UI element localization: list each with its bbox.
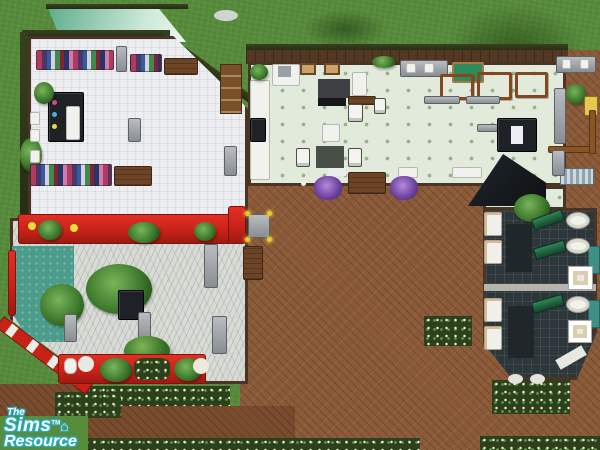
diner-chair-2[interactable]	[374, 98, 386, 114]
counter-plant-3[interactable]	[194, 222, 216, 241]
bathroom-sink-1[interactable]	[484, 212, 502, 236]
wall-shelf-units[interactable]	[220, 64, 242, 114]
white-flower-ball-2[interactable]	[193, 358, 209, 374]
garden-light-2[interactable]	[267, 211, 272, 216]
dark-rug	[318, 79, 350, 98]
window-left-1	[30, 112, 40, 125]
sink-basin-b[interactable]	[424, 63, 434, 73]
hedge-behind-lawn	[46, 4, 188, 9]
painting-1[interactable]	[300, 63, 316, 75]
outside-flowers-2	[530, 374, 545, 384]
counter-plant-2[interactable]	[128, 222, 160, 243]
deck-railing-v	[589, 110, 596, 154]
red-counter-side[interactable]	[228, 206, 246, 244]
display-stand-corridor[interactable]	[224, 146, 237, 176]
sink-basin-a[interactable]	[406, 63, 416, 73]
tsr-watermark-resource: Resource	[4, 435, 77, 450]
jewelry-dot-3	[52, 124, 57, 129]
purple-bush-1[interactable]	[314, 176, 342, 200]
white-flower-ball-1[interactable]	[78, 356, 94, 372]
jewelry-dot-2	[52, 112, 57, 117]
drinking-fountain[interactable]	[248, 214, 270, 238]
purple-bush-2[interactable]	[390, 176, 418, 200]
diner-corner-plant[interactable]	[250, 64, 268, 80]
tsr-watermark-tm: TM	[51, 421, 60, 427]
sims-lot-overhead-view: The SimsTM⌂ Resource	[0, 0, 600, 450]
counter-item-1	[70, 224, 78, 232]
shower-2[interactable]	[568, 320, 592, 343]
display-bench[interactable]	[114, 166, 152, 186]
counter-plant-1[interactable]	[38, 220, 62, 240]
rock	[214, 10, 238, 21]
stall-partition-2	[508, 306, 534, 358]
pergola-arch-3[interactable]	[515, 72, 548, 98]
diner-wall-plant[interactable]	[372, 56, 396, 68]
vase-white[interactable]	[64, 358, 77, 374]
garden-light-1[interactable]	[245, 211, 250, 216]
tall-rack-right[interactable]	[554, 88, 566, 144]
diner-chair-1[interactable]	[348, 104, 363, 122]
diner-chair-3[interactable]	[296, 148, 310, 167]
diner-chair-4[interactable]	[348, 148, 362, 167]
wall-counter-white-2[interactable]	[452, 167, 482, 178]
toilet-3[interactable]	[566, 296, 590, 313]
flowerbed-below-bathroom	[492, 380, 570, 414]
garden-light-3[interactable]	[245, 237, 250, 242]
toilet-2[interactable]	[566, 238, 590, 254]
clothes-rack-top-2[interactable]	[130, 54, 162, 72]
stall-partition-1	[506, 224, 532, 272]
counter-plant-4[interactable]	[100, 358, 132, 382]
right-wall-plant[interactable]	[566, 84, 586, 104]
deck-bench[interactable]	[243, 246, 263, 280]
machine-arm-shelf[interactable]	[477, 124, 498, 132]
flowerbed-bottom-right	[480, 436, 600, 450]
floor-bush-1[interactable]	[40, 284, 84, 326]
display-table-top[interactable]	[164, 58, 198, 75]
display-stand-m2[interactable]	[212, 316, 227, 354]
flower-tray[interactable]	[134, 358, 170, 380]
window-left-3	[30, 150, 40, 163]
store-plant-1[interactable]	[34, 82, 54, 104]
hedge-left	[20, 32, 28, 222]
outside-flowers-1	[508, 374, 523, 384]
display-stand-1[interactable]	[128, 118, 141, 142]
clothes-rack-top[interactable]	[36, 50, 114, 70]
garden-light-4[interactable]	[267, 237, 272, 242]
jewelry-dot-1	[52, 100, 57, 105]
diner-register[interactable]	[250, 118, 266, 142]
sink-basin-d[interactable]	[580, 59, 589, 69]
shower-1[interactable]	[568, 266, 593, 290]
bathroom-sink-2[interactable]	[484, 240, 502, 264]
bathroom-sink-3[interactable]	[484, 298, 502, 322]
picnic-table[interactable]	[348, 172, 386, 194]
white-display-case[interactable]	[66, 106, 80, 140]
mirror-tall[interactable]	[116, 46, 127, 72]
bathroom-sink-4[interactable]	[484, 326, 502, 350]
deck-light-dot	[301, 181, 306, 186]
display-stand-m3[interactable]	[64, 314, 77, 342]
tsr-watermark: The SimsTM⌂ Resource	[4, 408, 77, 450]
wall-shelf-bar-2[interactable]	[466, 96, 500, 104]
rack-right-2[interactable]	[552, 150, 565, 176]
wall-shelf-bar-1[interactable]	[424, 96, 460, 104]
menu-board[interactable]	[318, 98, 346, 106]
red-wall-left	[8, 250, 16, 316]
flowerbed-deck-patch	[424, 316, 472, 346]
machine-screen	[511, 126, 523, 144]
painting-2[interactable]	[324, 63, 340, 75]
clothes-rack-middle[interactable]	[30, 164, 112, 186]
display-stand-m1[interactable]	[204, 244, 218, 288]
dining-table[interactable]	[316, 146, 344, 168]
counter-item-2	[28, 222, 36, 230]
white-table[interactable]	[322, 124, 340, 142]
diner-door-mat	[328, 168, 346, 176]
stove-top	[278, 66, 291, 77]
toilet-1[interactable]	[566, 212, 590, 229]
sink-basin-c[interactable]	[562, 59, 571, 69]
fridge[interactable]	[352, 72, 367, 96]
window-left-2	[30, 129, 40, 142]
glass-panel	[560, 168, 594, 185]
tsr-house-icon: ⌂	[60, 418, 68, 434]
